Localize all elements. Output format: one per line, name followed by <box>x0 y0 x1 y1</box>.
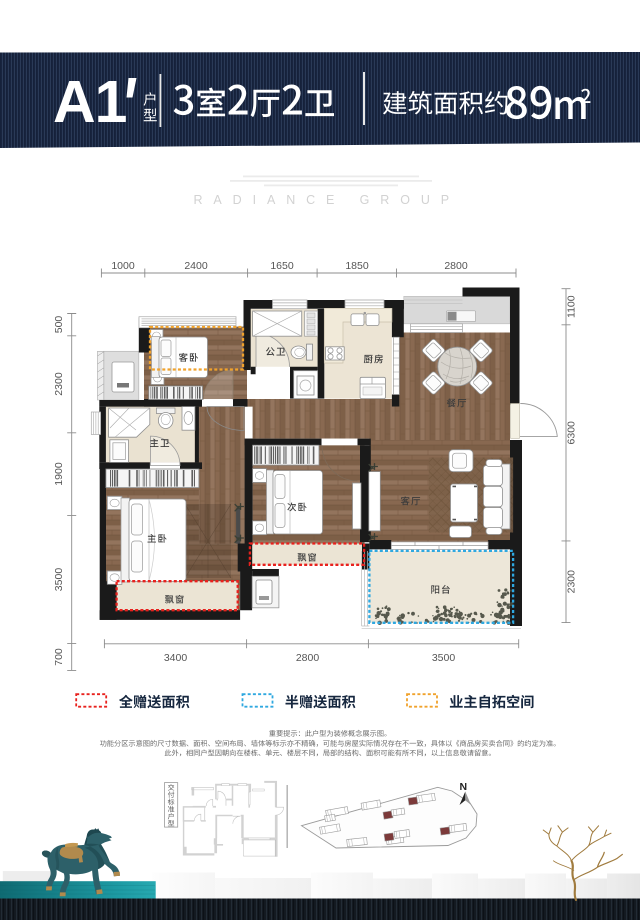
svg-text:6300: 6300 <box>566 421 578 445</box>
svg-text:2300: 2300 <box>53 372 65 396</box>
svg-text:RADIANCE GROUP: RADIANCE GROUP <box>194 193 461 207</box>
svg-text:1850: 1850 <box>345 260 369 272</box>
svg-text:N: N <box>460 781 468 793</box>
svg-text:1900: 1900 <box>53 462 65 486</box>
svg-text:1100: 1100 <box>566 295 578 318</box>
svg-text:3400: 3400 <box>164 652 188 664</box>
svg-text:3500: 3500 <box>53 568 65 592</box>
svg-text:A1: A1 <box>53 69 127 135</box>
svg-text:3500: 3500 <box>432 652 456 664</box>
svg-text:2800: 2800 <box>444 260 468 272</box>
svg-text:1000: 1000 <box>111 260 135 272</box>
svg-text:1650: 1650 <box>270 260 294 272</box>
svg-text:2800: 2800 <box>296 652 320 664</box>
svg-text:2300: 2300 <box>566 570 578 594</box>
svg-text:2400: 2400 <box>184 260 208 272</box>
svg-text:500: 500 <box>53 316 65 334</box>
svg-text:700: 700 <box>53 648 65 666</box>
